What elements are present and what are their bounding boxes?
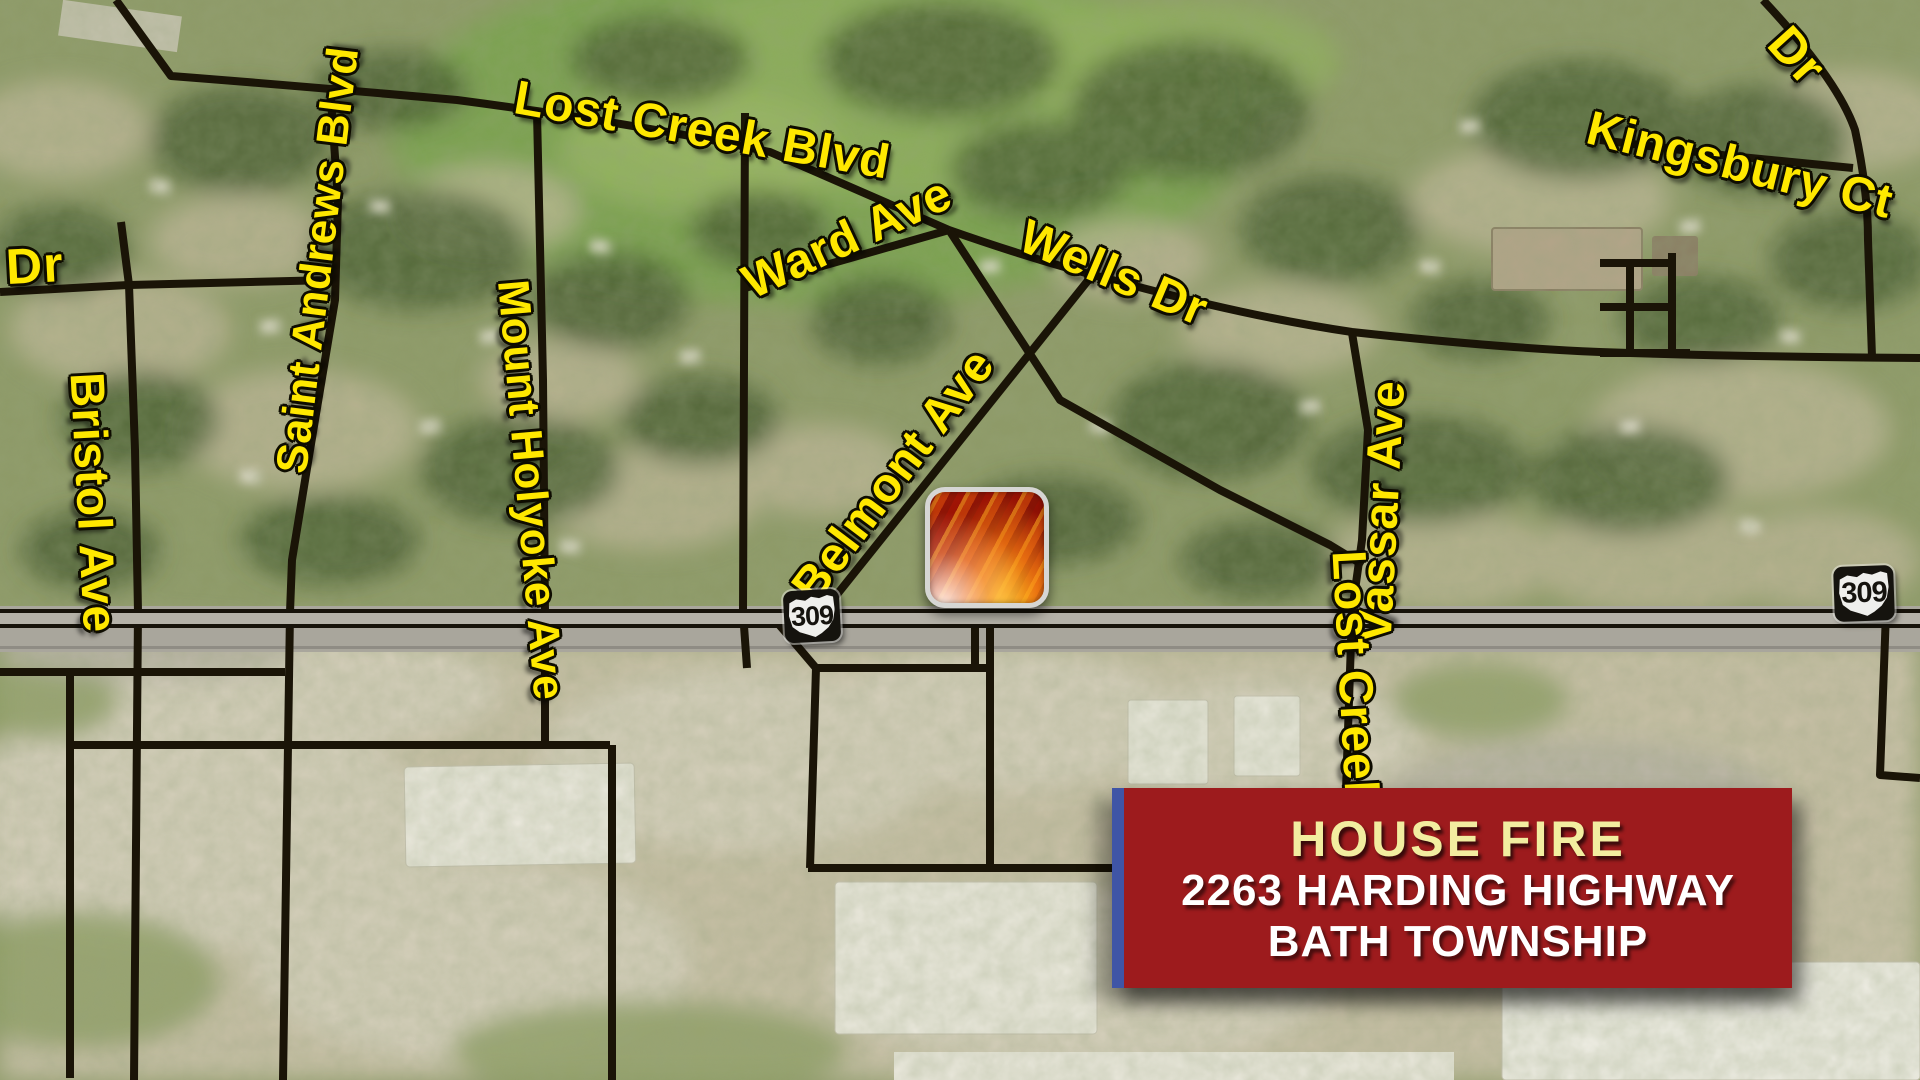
route-309-shield-east: 309 <box>1833 565 1895 622</box>
street-label-dr-west: Dr <box>4 235 65 296</box>
route-number: 309 <box>783 589 842 644</box>
fire-incident-icon <box>925 487 1049 608</box>
route-309-shield-west: 309 <box>783 589 842 644</box>
alert-address-line1: 2263 HARDING HIGHWAY <box>1181 867 1735 915</box>
news-map-graphic: Lost Creek Blvd Kingsbury Ct Dr Dr Saint… <box>0 0 1920 1080</box>
alert-address-line2: BATH TOWNSHIP <box>1268 918 1648 966</box>
alert-title: HOUSE FIRE <box>1290 814 1626 864</box>
route-number: 309 <box>1833 565 1895 622</box>
alert-banner: HOUSE FIRE 2263 HARDING HIGHWAY BATH TOW… <box>1112 788 1792 988</box>
